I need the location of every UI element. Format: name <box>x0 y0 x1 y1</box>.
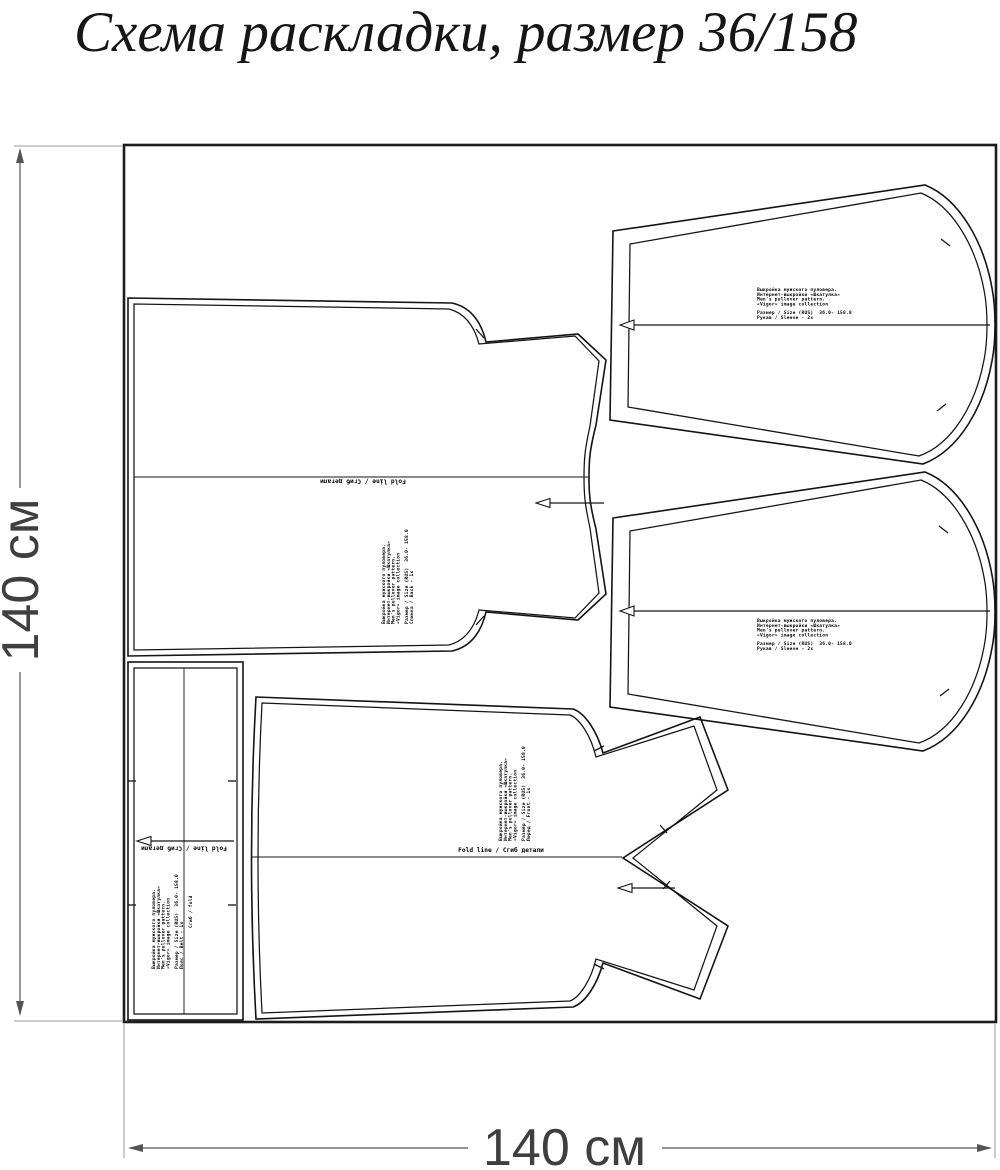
fabric-area <box>124 145 996 1022</box>
piece-name-line: Перед / Front - 1x <box>526 788 532 841</box>
notch <box>940 689 949 696</box>
svg-text:Сгиб / fold: Сгиб / fold <box>187 895 194 928</box>
fold-line-label: Fold line / Сгиб детали <box>141 845 227 853</box>
fold-line-label: Fold line / Сгиб детали <box>458 846 544 854</box>
piece-name-line: Рукав / Sleeve - 2x <box>757 315 813 321</box>
marker-diagram: Выкройка мужского пуловера. Интернет-вык… <box>0 0 1000 1170</box>
grainline-arrowhead-icon <box>536 499 550 508</box>
sleeve-top-piece: Выкройка мужского пуловера. Интернет-вык… <box>610 185 995 464</box>
band-piece: Fold line / Сгиб детали Выкройка мужског… <box>128 662 243 1020</box>
notch <box>939 526 948 533</box>
band-fold-label: Сгиб / fold <box>187 895 194 928</box>
arrowhead-right-icon <box>977 1144 992 1152</box>
arrowhead-left-icon <box>128 1144 143 1152</box>
grainline-arrowhead-icon <box>137 837 151 846</box>
notch <box>937 404 946 411</box>
info-line: «Vigor» image collection <box>757 632 828 638</box>
piece-info-text: Выкройка мужского пуловера. Интернет-вык… <box>381 529 415 624</box>
arrowhead-down-icon <box>16 1001 24 1016</box>
grainline-arrowhead-icon <box>620 606 634 616</box>
fold-line-label: Fold line / Сгиб детали <box>320 478 406 486</box>
piece-info-text: Выкройка мужского пуловера. Интернет-вык… <box>757 287 852 321</box>
piece-info-text: Выкройка мужского пуловера. Интернет-вык… <box>498 746 532 841</box>
piece-info-text: Выкройка мужского пуловера. Интернет-вык… <box>757 618 852 652</box>
grainline-arrowhead-icon <box>620 320 634 330</box>
width-dimension <box>124 1024 995 1158</box>
info-line: «Vigor» image collection <box>395 553 401 624</box>
piece-name-line: Спинка / Back - 1x <box>409 571 415 624</box>
piece-name-line: Рукав / Sleeve - 2x <box>757 646 813 652</box>
sleeve-bottom-piece: Выкройка мужского пуловера. Интернет-вык… <box>610 472 995 751</box>
svg-text:Fold line / Сгиб детали: Fold line / Сгиб детали <box>141 845 227 853</box>
arrowhead-up-icon <box>16 148 24 163</box>
layout-scheme-page: Схема раскладки, размер 36/158 140 см 14… <box>0 0 1000 1170</box>
back-piece: Fold line / Сгиб детали Выкройка мужског… <box>128 298 606 656</box>
notch <box>941 239 950 246</box>
info-line: «Vigor» image collection <box>757 301 828 307</box>
height-dimension <box>14 146 122 1021</box>
piece-name-line: Пояс / Belt - 1x <box>179 922 185 969</box>
info-line: «Vigor» image collection <box>512 770 518 841</box>
grainline-arrowhead-icon <box>618 884 632 893</box>
svg-text:Fold line / Сгиб детали: Fold line / Сгиб детали <box>320 478 406 486</box>
info-line: «Vigor» image collection <box>165 898 171 969</box>
front-piece: Fold line / Сгиб детали Выкройка мужског… <box>251 697 728 1019</box>
piece-info-text: Выкройка мужского пуловера. Интернет-вык… <box>151 874 185 969</box>
